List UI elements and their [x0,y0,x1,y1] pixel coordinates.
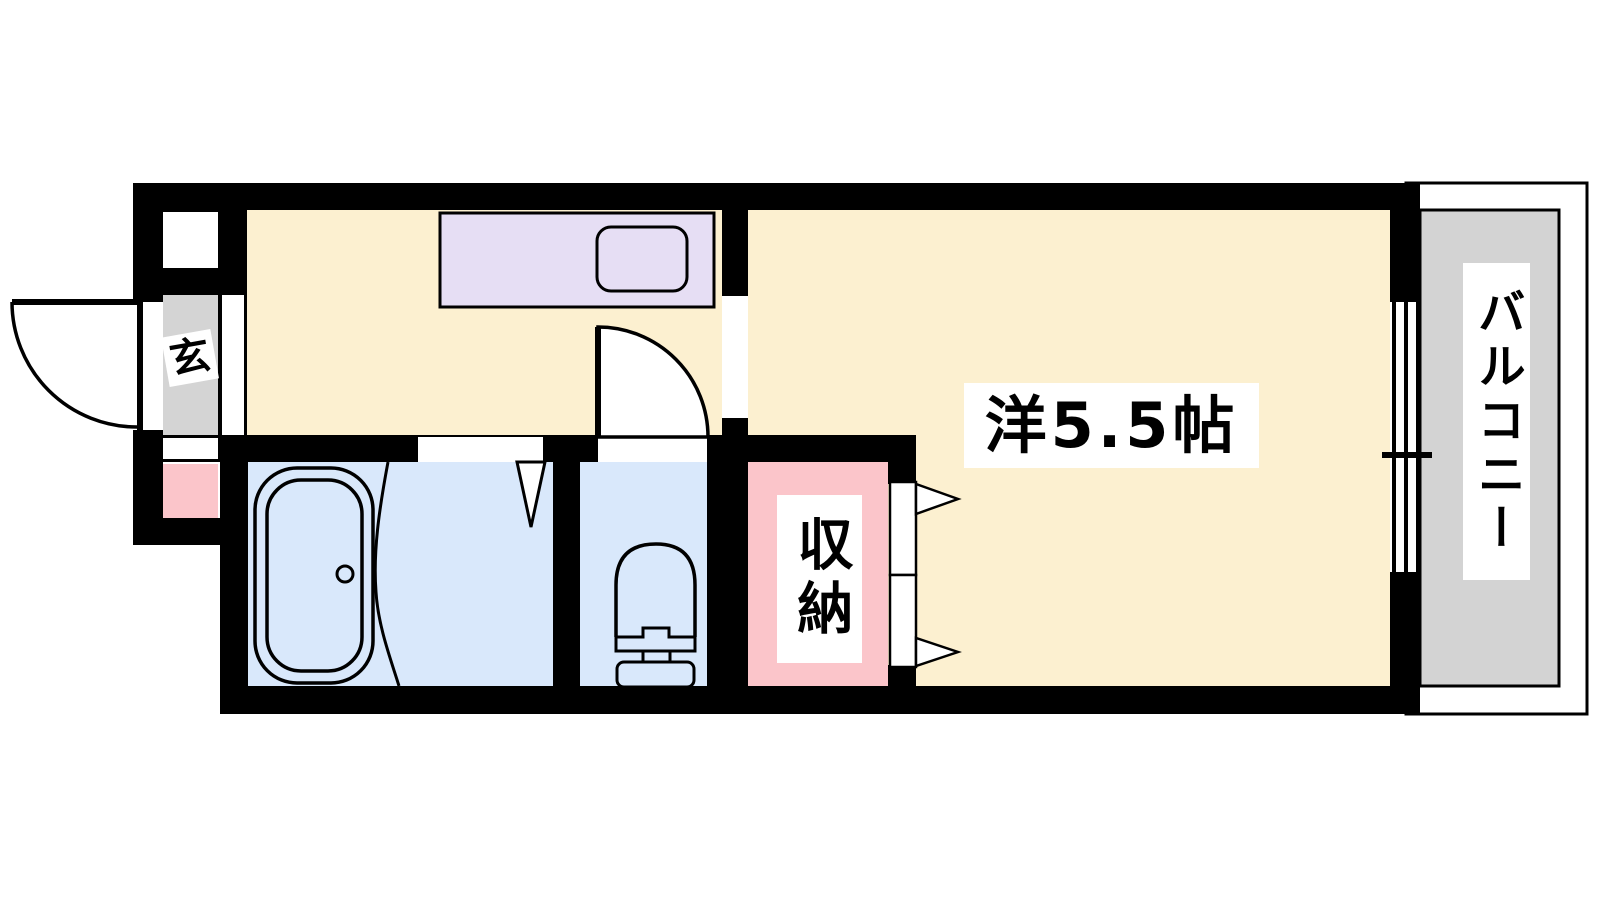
entrance-step-line2 [244,295,247,435]
entrance-inner-gap [163,438,218,459]
closet-door-panel-1 [890,482,916,575]
wall-entrance-bottom [137,518,220,545]
closet-door-panel-2 [890,575,916,667]
bathroom-floor [248,462,553,686]
kitchen-room-doorway [722,296,748,418]
floor-plan: 玄 洋5.5帖 収納 バルコニー [0,0,1600,900]
wall-left-lower [220,435,248,714]
wall-bottom [220,686,1420,714]
western-room-label: 洋5.5帖 [964,383,1259,468]
kitchen-counter-icon [440,213,714,307]
balcony-label: バルコニー [1463,263,1530,580]
storage-label: 収納 [777,495,862,663]
interior-door-leaf [595,327,601,437]
window-rail-2 [1404,302,1408,572]
entrance-side-box [163,464,218,520]
meter-box [163,212,218,268]
entrance-door-arc [12,302,137,427]
entrance-door-leaf [12,299,137,305]
entrance-door-swing-icon [12,299,137,427]
entrance-door-jamb [137,302,143,430]
window-latch-tick [1382,452,1432,458]
window-rail-3 [1416,302,1420,572]
kitchen-sink-icon [597,227,687,291]
entrance-step-line [218,295,222,435]
entrance-step [222,295,247,435]
wall-top [133,183,1420,210]
wall-toilet-storage [707,462,748,686]
entrance-label: 玄 [161,329,219,387]
bathroom-doorway [418,437,543,462]
wall-storage-stub-top [888,462,916,484]
wall-bath-toilet [553,462,580,686]
floor-plan-drawing [0,0,1600,900]
window-rail-1 [1392,302,1396,572]
toilet-doorway [598,437,707,462]
